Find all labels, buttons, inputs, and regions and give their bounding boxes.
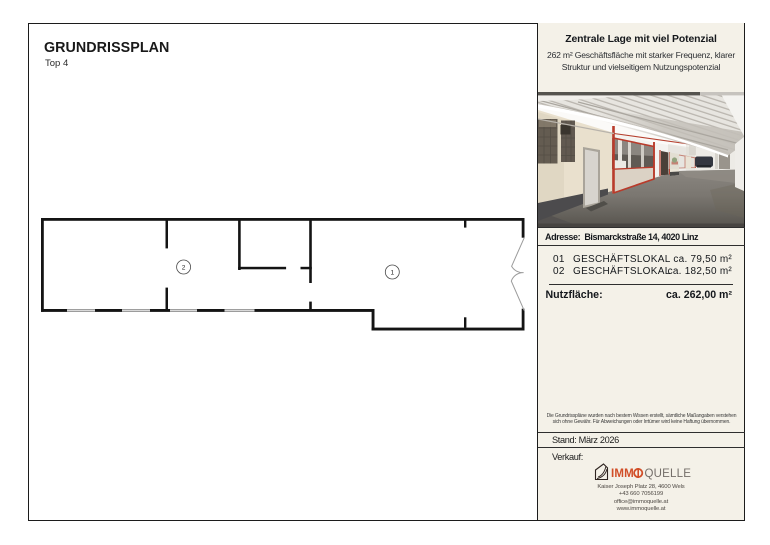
svg-text:1: 1 xyxy=(390,269,394,276)
svg-text:IMM: IMM xyxy=(611,468,634,480)
svg-text:2: 2 xyxy=(182,264,186,271)
svg-text:QUELLE: QUELLE xyxy=(645,468,692,480)
